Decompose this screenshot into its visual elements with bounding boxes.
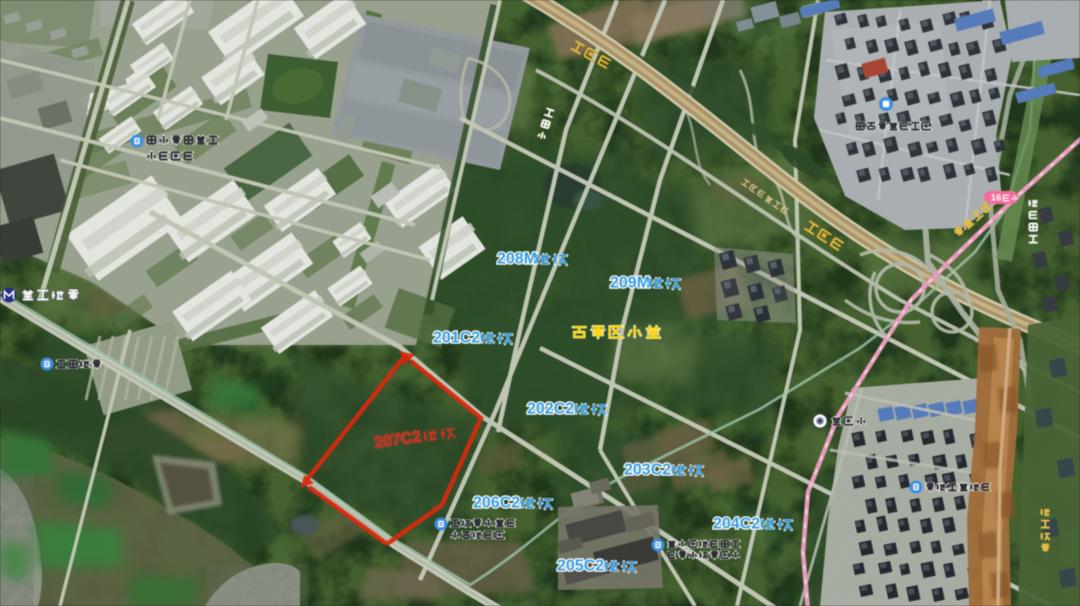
- svg-text:206C2: 206C2: [473, 495, 520, 512]
- svg-text:202C2: 202C2: [527, 401, 574, 418]
- svg-text:203C2: 203C2: [624, 462, 671, 479]
- svg-text:201C2: 201C2: [433, 330, 480, 347]
- svg-text:209M: 209M: [610, 275, 650, 292]
- svg-text:208M: 208M: [497, 251, 537, 268]
- svg-text:204C2: 204C2: [713, 516, 760, 533]
- svg-text:16: 16: [991, 193, 1002, 204]
- svg-text:205C2: 205C2: [557, 558, 604, 575]
